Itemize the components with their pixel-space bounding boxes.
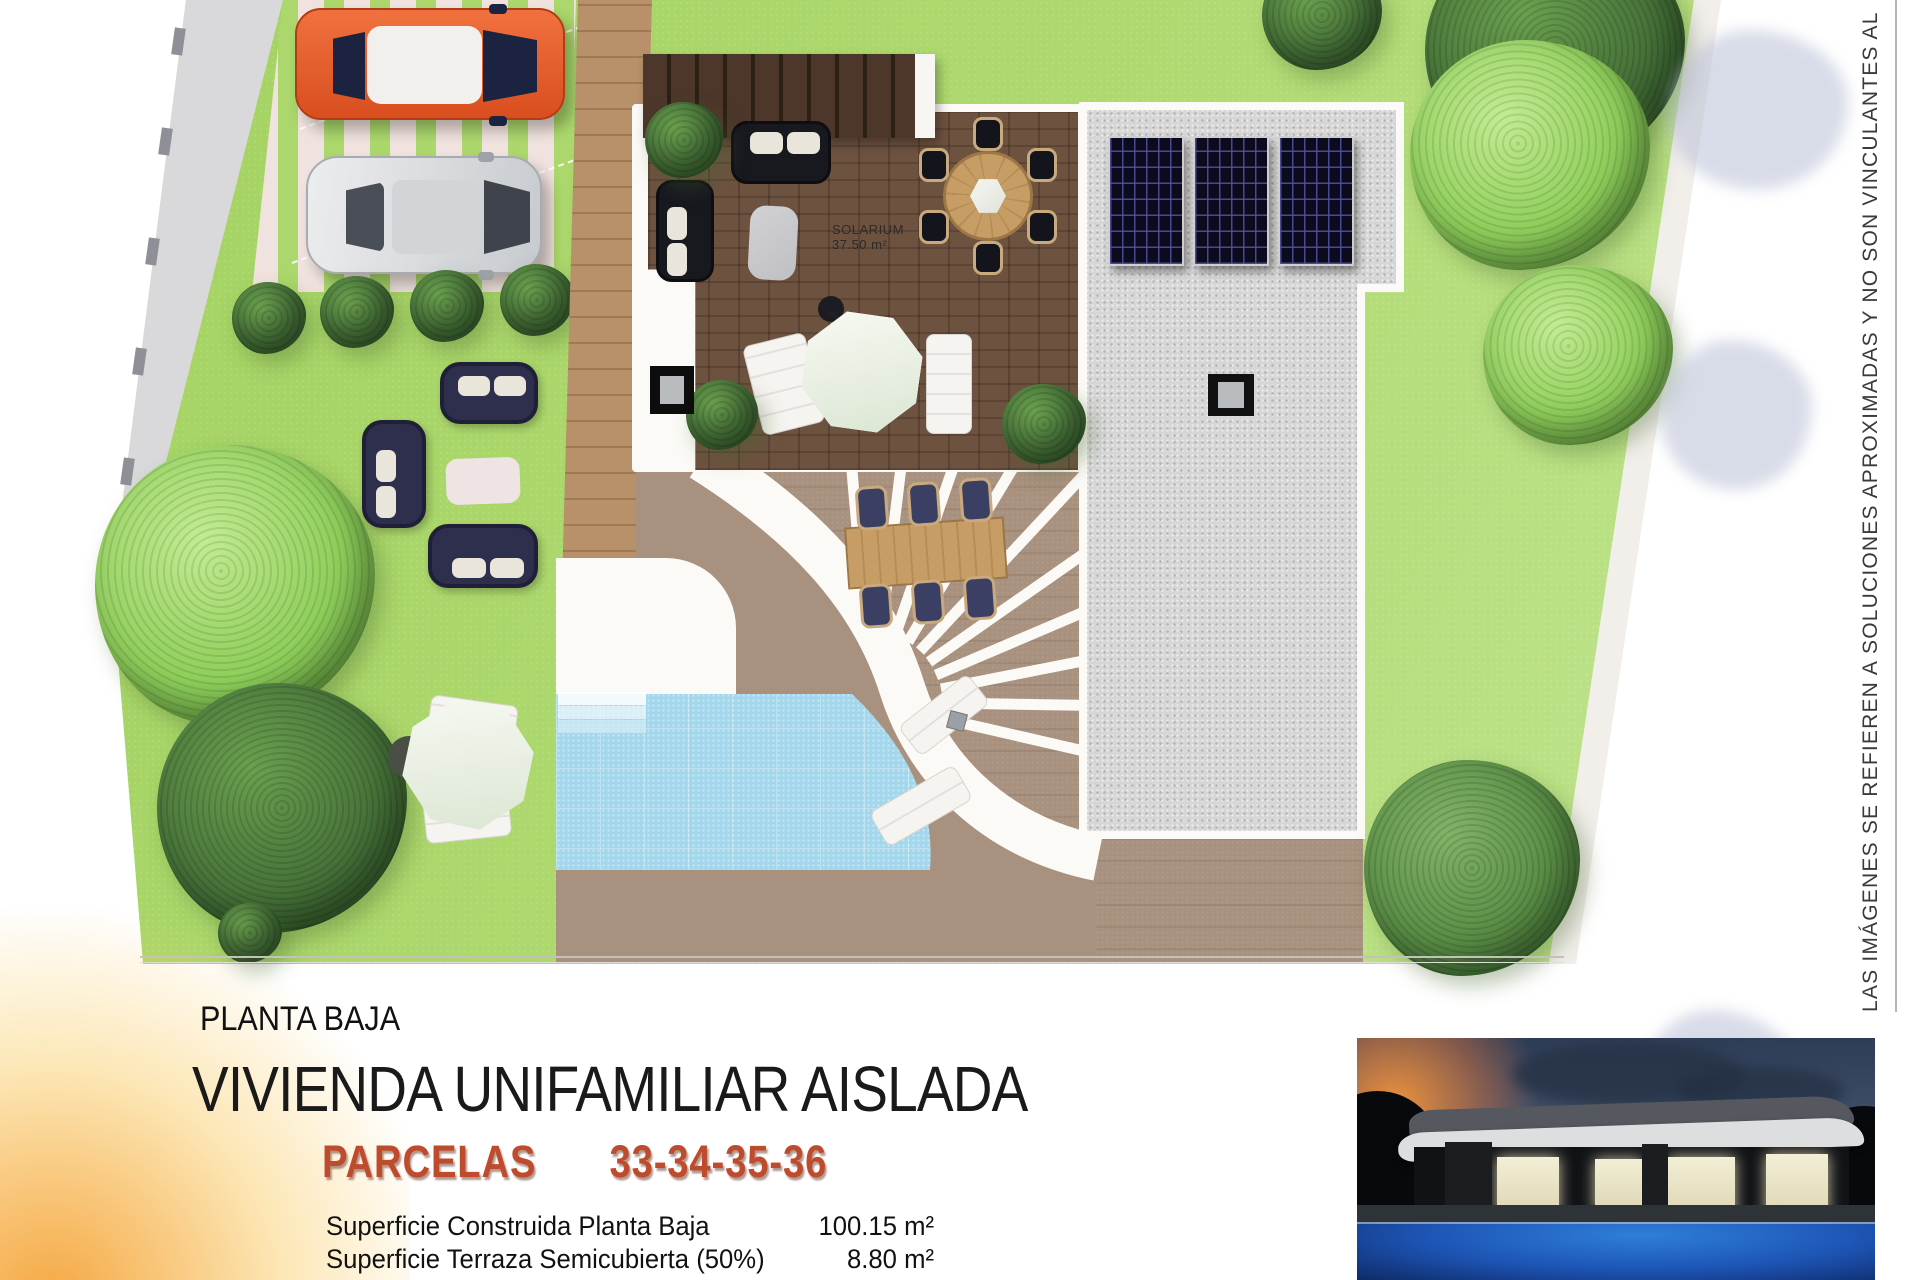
dining-chair xyxy=(855,485,890,531)
solar-panel xyxy=(1193,136,1269,266)
pergola-gap xyxy=(915,54,935,138)
garden-sofa xyxy=(428,524,538,588)
deck-chair xyxy=(1027,210,1057,244)
dining-chair xyxy=(963,575,998,621)
solarium-label: SOLARIUM 37.50 m² xyxy=(832,222,904,252)
garden-sofa xyxy=(440,362,538,424)
deck-sofa xyxy=(731,121,831,184)
dining-chair xyxy=(959,477,994,523)
deck-lounger xyxy=(926,334,972,434)
area-value: 100.15 m² xyxy=(782,1211,934,1242)
area-table: Superficie Construida Planta Baja 100.15… xyxy=(326,1210,934,1276)
floor-label: PLANTA BAJA xyxy=(200,1000,400,1039)
deck-sofa xyxy=(656,180,714,282)
pool-step xyxy=(558,720,646,733)
deck-chair xyxy=(919,148,949,182)
parcels-label: PARCELAS xyxy=(322,1136,536,1188)
deck-chair xyxy=(973,241,1003,275)
page: SOLARIUM 37.50 m² xyxy=(0,0,1920,1280)
disclaimer-vertical-text: LAS IMÁGENES SE REFIEREN A SOLUCIONES AP… xyxy=(1852,0,1890,1012)
parcels-row: PARCELAS 33-34-35-36 xyxy=(322,1136,827,1188)
area-row: Superficie Construida Planta Baja 100.15… xyxy=(326,1210,934,1243)
area-value: 8.80 m² xyxy=(782,1244,934,1275)
deck-chair xyxy=(973,117,1003,151)
deck-chair xyxy=(1027,148,1057,182)
pool-step xyxy=(558,706,646,719)
page-edge-line xyxy=(1895,0,1897,1012)
deck-rug xyxy=(747,205,799,281)
inset-photo xyxy=(1357,1038,1875,1280)
dining-chair xyxy=(911,579,946,625)
deck-chair xyxy=(919,210,949,244)
grill xyxy=(650,366,694,414)
parcels-numbers: 33-34-35-36 xyxy=(609,1136,827,1188)
area-row: Superficie Terraza Semicubierta (50%) 8.… xyxy=(326,1243,934,1276)
garden-rug xyxy=(445,457,521,506)
project-title: VIVIENDA UNIFAMILIAR AISLADA xyxy=(192,1052,1027,1126)
solar-panel xyxy=(1278,136,1354,266)
roof-hatch-lid xyxy=(1218,382,1244,408)
garden-sofa xyxy=(362,420,426,528)
photo-deck xyxy=(1357,1205,1875,1222)
sun-ledge xyxy=(556,558,736,694)
area-label: Superficie Construida Planta Baja xyxy=(326,1211,782,1242)
roof-hatch xyxy=(1208,374,1254,416)
dining-chair xyxy=(907,481,942,527)
photo-pool xyxy=(1357,1222,1875,1280)
area-label: Superficie Terraza Semicubierta (50%) xyxy=(326,1244,782,1275)
dining-chair xyxy=(859,583,894,629)
solar-panel xyxy=(1108,136,1184,266)
pool-step xyxy=(558,692,646,705)
